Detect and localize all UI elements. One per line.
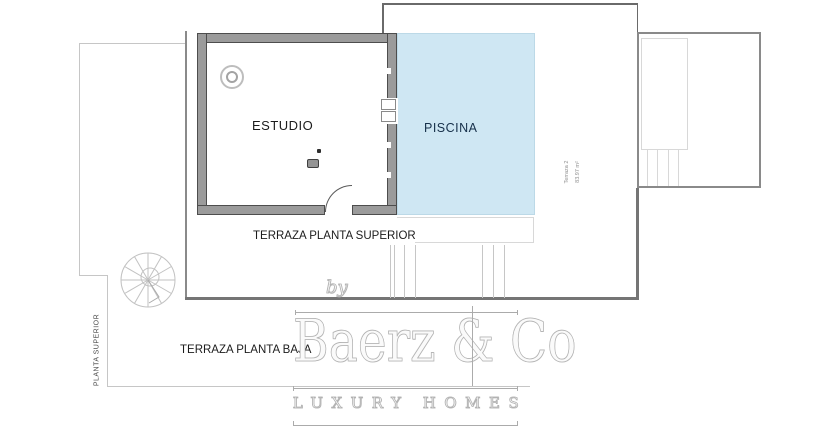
- watermark-rule-tick: [293, 421, 294, 426]
- planta-superior-label: PLANTA SUPERIOR: [94, 314, 101, 386]
- terrace-step-line: [394, 245, 395, 298]
- terrace-line-step-v: [107, 275, 108, 386]
- walkway-bottom-line: [415, 242, 534, 243]
- watermark-by: by: [326, 277, 348, 298]
- terrace-step-line: [390, 245, 391, 298]
- annex-stair-line: [668, 150, 669, 186]
- terrace-step-line: [482, 245, 483, 298]
- watermark-rule-tick: [517, 386, 518, 391]
- terrace-step-line: [493, 245, 494, 298]
- annex-stair-line: [678, 150, 679, 186]
- watermark-rule-mid: [293, 388, 518, 389]
- upper-outline-right: [637, 3, 639, 33]
- terrace-step-line: [504, 245, 505, 298]
- watermark-divider: [472, 306, 473, 386]
- annex-stair-line: [657, 150, 658, 186]
- watermark-brand: Baerz & Co: [293, 304, 577, 379]
- piscina-label: PISCINA: [424, 121, 478, 135]
- window-sill: [381, 111, 396, 122]
- boundary-left: [185, 31, 187, 299]
- watermark-tagline: LUXURY HOMES: [285, 394, 528, 412]
- boundary-right: [636, 188, 639, 299]
- wall-notch: [387, 172, 391, 178]
- boundary-bottom: [185, 297, 639, 300]
- plan-dot: [317, 149, 321, 153]
- wall-notch: [387, 142, 391, 148]
- watermark-brand-wrap: Baerz & Co: [266, 304, 546, 379]
- terrace-step-line: [404, 245, 405, 298]
- spiral-staircase: [119, 251, 177, 309]
- wall-notch: [387, 68, 391, 74]
- upper-outline-left: [382, 3, 384, 34]
- estudio-wall-bottom-right: [352, 205, 397, 215]
- terrace-line-top-left: [79, 43, 186, 44]
- plan-box: [307, 159, 319, 168]
- estudio-wall-left: [197, 33, 207, 215]
- terrace-step-line: [415, 245, 416, 298]
- terrace-line-bottom: [107, 386, 530, 387]
- annex-stair-line: [647, 150, 648, 186]
- terraza-superior-label: TERRAZA PLANTA SUPERIOR: [253, 230, 416, 242]
- window-sill: [381, 99, 396, 110]
- walkway-right-line: [533, 217, 534, 243]
- column-circle-inner: [226, 71, 238, 83]
- estudio-label: ESTUDIO: [252, 118, 313, 133]
- watermark-rule-bottom: [293, 425, 518, 426]
- watermark-tagline-wrap: LUXURY HOMES: [266, 394, 546, 413]
- annex-inner-room: [641, 38, 688, 150]
- terrace-line-left: [79, 43, 80, 275]
- terrace-line-step-h: [79, 275, 108, 276]
- area-note-name: Terraza 2: [564, 161, 570, 184]
- watermark-rule-tick: [293, 386, 294, 391]
- floor-plan: ESTUDIO PISCINA TERRAZA PLANTA SUPERIOR …: [0, 0, 816, 446]
- upper-outline-top: [382, 3, 638, 5]
- pool-coping-line: [397, 217, 534, 218]
- estudio-wall-bottom-left: [197, 205, 325, 215]
- estudio-wall-top: [197, 33, 397, 43]
- area-note-size: 83.97 m²: [575, 161, 581, 183]
- estudio-wall-right: [387, 33, 397, 215]
- watermark-rule-tick: [517, 421, 518, 426]
